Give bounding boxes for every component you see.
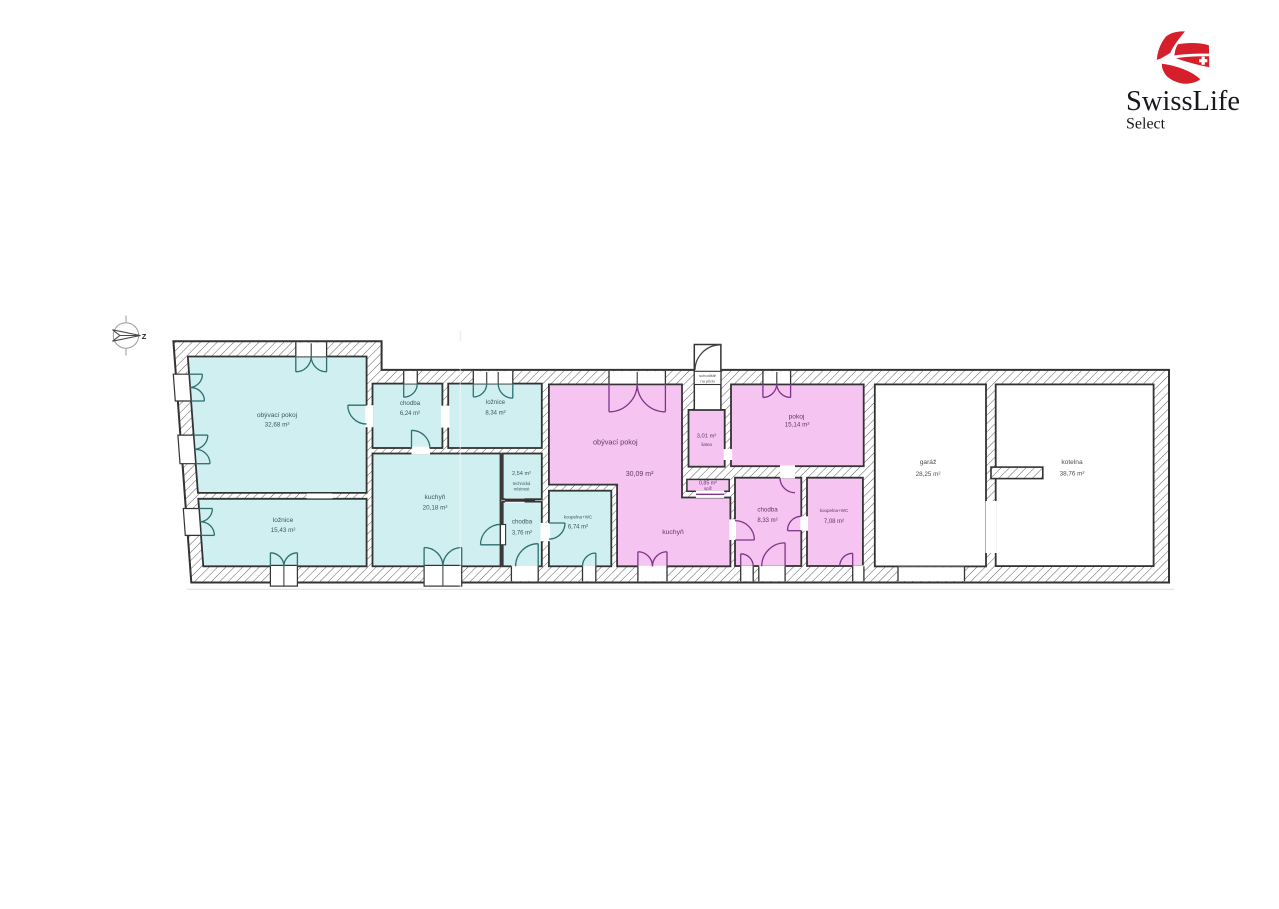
svg-text:ložnice: ložnice: [486, 399, 506, 406]
svg-text:30,09 m²: 30,09 m²: [626, 471, 654, 478]
svg-text:chodba: chodba: [512, 518, 533, 525]
svg-text:SwissLife: SwissLife: [1126, 86, 1240, 117]
svg-text:technická: technická: [513, 481, 531, 486]
svg-text:spíž: spíž: [704, 486, 712, 491]
svg-text:3,76 m²: 3,76 m²: [512, 530, 532, 536]
svg-text:obývací pokoj: obývací pokoj: [257, 412, 298, 419]
svg-text:20,18 m²: 20,18 m²: [423, 504, 448, 511]
svg-text:garáž: garáž: [920, 459, 937, 466]
svg-text:7,08 m²: 7,08 m²: [824, 519, 844, 525]
svg-text:15,14 m²: 15,14 m²: [785, 422, 810, 429]
svg-text:místnost: místnost: [514, 486, 531, 491]
svg-text:8,34 m²: 8,34 m²: [485, 410, 505, 416]
svg-text:chodba: chodba: [757, 506, 778, 513]
svg-text:na půdu: na půdu: [700, 379, 714, 384]
svg-text:2,54 m²: 2,54 m²: [512, 471, 531, 477]
svg-text:6,74 m²: 6,74 m²: [568, 525, 588, 531]
svg-text:kotelna: kotelna: [1061, 459, 1083, 466]
svg-text:32,68 m²: 32,68 m²: [265, 422, 290, 429]
svg-text:Z: Z: [142, 332, 147, 341]
svg-text:6,24 m²: 6,24 m²: [400, 411, 420, 417]
svg-text:8,33 m²: 8,33 m²: [757, 518, 777, 524]
svg-text:kuchyň: kuchyň: [662, 529, 684, 536]
svg-text:15,43 m²: 15,43 m²: [271, 527, 296, 534]
svg-text:koupelna+WC: koupelna+WC: [820, 508, 849, 513]
svg-text:kuchyň: kuchyň: [425, 494, 446, 501]
svg-text:pokoj: pokoj: [789, 413, 805, 420]
svg-text:schodiště: schodiště: [699, 373, 717, 378]
svg-text:koupelna+WC: koupelna+WC: [564, 515, 593, 520]
svg-text:obývací pokoj: obývací pokoj: [593, 437, 638, 446]
svg-text:38,76 m²: 38,76 m²: [1060, 471, 1085, 478]
svg-text:šatna: šatna: [701, 442, 712, 447]
svg-text:28,25 m²: 28,25 m²: [916, 471, 941, 478]
svg-text:ložnice: ložnice: [273, 517, 294, 524]
svg-text:chodba: chodba: [400, 400, 421, 407]
svg-text:Select: Select: [1126, 116, 1166, 133]
svg-text:3,01 m²: 3,01 m²: [697, 434, 717, 440]
